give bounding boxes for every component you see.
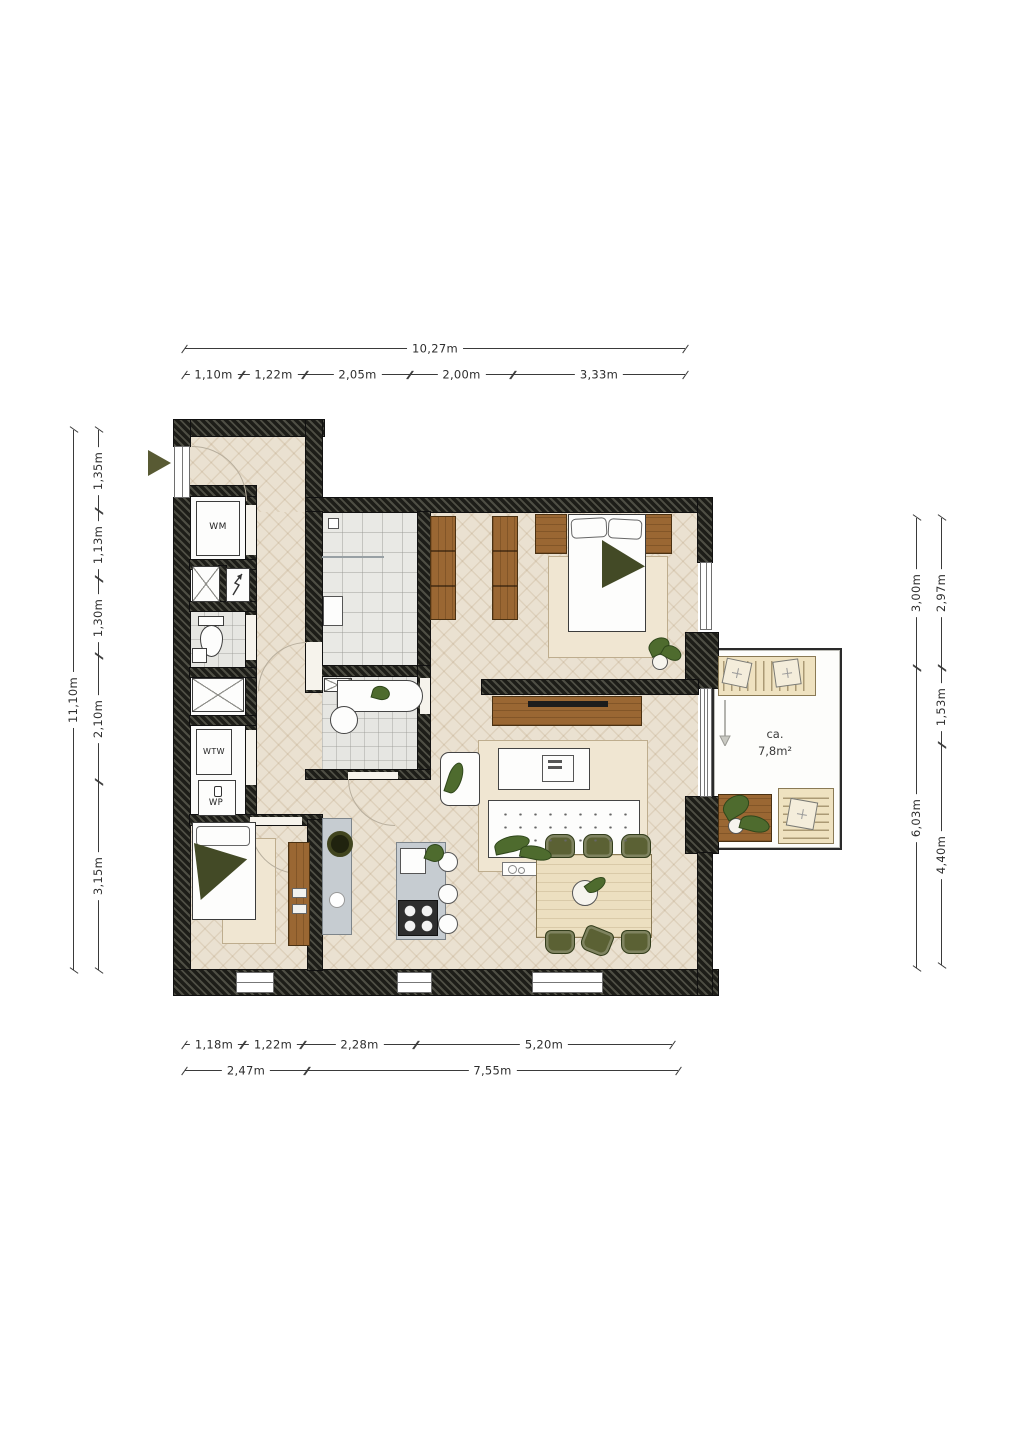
dim-label: 10,27m bbox=[407, 342, 463, 356]
kitchen-window bbox=[397, 972, 432, 993]
wall-living-top bbox=[482, 680, 698, 694]
dim-bottom-seg: 1,18m bbox=[185, 1044, 243, 1045]
dim-top-seg: 3,33m bbox=[513, 374, 685, 375]
dim-label: 2,10m bbox=[91, 695, 105, 743]
storage-closet-2 bbox=[192, 678, 244, 712]
dim-label: 1,22m bbox=[249, 1038, 297, 1052]
dim-top-seg: 2,05m bbox=[305, 374, 410, 375]
washing-machine-label: WM bbox=[196, 522, 240, 532]
dim-label: 2,47m bbox=[222, 1064, 270, 1078]
bathtub-room-door2 bbox=[348, 772, 398, 779]
closet-wardrobe bbox=[430, 516, 456, 620]
dim-label: 1,13m bbox=[91, 521, 105, 569]
dim-right-outer: 3,00m bbox=[916, 518, 917, 668]
master-bed-pillow bbox=[571, 517, 608, 539]
balcony-exit-arrow-icon bbox=[718, 700, 732, 746]
dim-bottom-seg: 2,28m bbox=[303, 1044, 416, 1045]
dim-top-seg: 1,10m bbox=[185, 374, 242, 375]
dim-label: 1,53m bbox=[934, 682, 948, 730]
wall-pier-balcony-bottom bbox=[686, 797, 718, 853]
wall-service-divider bbox=[190, 716, 256, 725]
balcony-sliding-door bbox=[700, 688, 712, 797]
dim-label: 3,33m bbox=[575, 368, 623, 382]
dim-left-seg: 1,30m bbox=[98, 579, 99, 656]
storage-closet bbox=[192, 566, 220, 602]
dim-right-inner: 4,40m bbox=[941, 745, 942, 965]
bench-cushion bbox=[772, 658, 801, 687]
dim-label: 11,10m bbox=[66, 672, 80, 728]
counter-tap bbox=[329, 892, 345, 908]
shower-glass bbox=[322, 556, 384, 558]
coffee-table-book bbox=[548, 766, 562, 769]
dim-left-seg: 3,15m bbox=[98, 782, 99, 970]
bathroom-door bbox=[306, 642, 322, 690]
dim-right-inner: 1,53m bbox=[941, 668, 942, 745]
bedroom2-window bbox=[236, 972, 274, 993]
heat-pump-label: WP bbox=[194, 798, 238, 808]
dim-label: 2,97m bbox=[934, 569, 948, 617]
heat-pump-icon bbox=[214, 786, 222, 797]
wall-bathroom-right bbox=[418, 512, 430, 666]
tech-room-door bbox=[246, 730, 256, 785]
meter-cabinet-arrow-icon bbox=[230, 571, 246, 599]
wall-bathtub-room-top bbox=[306, 666, 430, 676]
wall-meter-divider bbox=[219, 566, 226, 606]
front-door bbox=[174, 446, 190, 498]
dim-bottom-seg: 1,22m bbox=[243, 1044, 303, 1045]
wall-bedroom2-right bbox=[308, 820, 322, 970]
dim-left-seg: 1,35m bbox=[98, 430, 99, 511]
dim-label: 1,18m bbox=[190, 1038, 238, 1052]
dining-chair bbox=[621, 930, 651, 954]
dim-top-seg: 1,22m bbox=[242, 374, 305, 375]
dim-label: 1,30m bbox=[91, 593, 105, 641]
toilet-basin bbox=[192, 648, 207, 663]
island-sink bbox=[400, 848, 426, 874]
round-washbasin bbox=[330, 706, 358, 734]
closet-wardrobe bbox=[492, 516, 518, 620]
wall-left bbox=[174, 498, 190, 995]
dim-top-seg: 2,00m bbox=[410, 374, 513, 375]
dim-bottom-total: 2,47m bbox=[185, 1070, 307, 1071]
dim-label: 2,00m bbox=[437, 368, 485, 382]
master-bedroom-window bbox=[700, 562, 712, 630]
bedroom2-pillow bbox=[196, 826, 250, 846]
dim-label: 1,10m bbox=[189, 368, 237, 382]
bar-stool bbox=[438, 914, 458, 934]
wm-closet-door bbox=[246, 505, 256, 555]
dim-label: 1,35m bbox=[91, 446, 105, 494]
bar-stool bbox=[438, 884, 458, 904]
cooktop bbox=[398, 900, 438, 936]
dining-chair bbox=[545, 930, 575, 954]
bedside-dresser bbox=[535, 514, 567, 554]
living-window bbox=[532, 972, 603, 993]
bathroom-floor bbox=[322, 512, 418, 666]
dim-top-overall: 10,27m bbox=[185, 348, 685, 349]
counter-sink bbox=[327, 831, 353, 857]
balcony-area-prefix: ca. bbox=[740, 726, 810, 743]
floor-plan-canvas: 10,27m 1,10m 1,22m 2,05m 2,00m 3,33m 11,… bbox=[0, 0, 1018, 1440]
dim-label: 7,55m bbox=[468, 1064, 516, 1078]
dim-label: 5,20m bbox=[520, 1038, 568, 1052]
dim-label: 4,40m bbox=[934, 831, 948, 879]
dim-label: 6,03m bbox=[909, 794, 923, 842]
wall-right-lower bbox=[698, 853, 712, 995]
console-glass bbox=[508, 865, 517, 874]
dim-left-seg: 2,10m bbox=[98, 656, 99, 782]
desk-papers bbox=[292, 904, 307, 914]
wall-left-stub bbox=[174, 420, 190, 446]
heat-recovery-label: WTW bbox=[192, 747, 236, 756]
balcony-area-label: ca. 7,8m² bbox=[740, 726, 810, 761]
master-bed-pillow bbox=[607, 518, 642, 540]
bedroom2-door bbox=[250, 817, 302, 825]
wall-top-main bbox=[306, 498, 712, 512]
desk-papers bbox=[292, 888, 307, 898]
shower-drain bbox=[328, 518, 339, 529]
tv bbox=[528, 701, 608, 707]
dim-left-seg: 1,13m bbox=[98, 511, 99, 579]
dim-bottom-seg: 5,20m bbox=[416, 1044, 672, 1045]
dim-label: 2,05m bbox=[333, 368, 381, 382]
wall-hall-top bbox=[174, 420, 324, 436]
wall-service-divider bbox=[190, 602, 256, 611]
dim-label: 1,22m bbox=[249, 368, 297, 382]
console-glass bbox=[518, 867, 525, 874]
dim-label: 3,00m bbox=[909, 569, 923, 617]
bathroom-washbasin bbox=[323, 596, 343, 626]
balcony-area-value: 7,8m² bbox=[740, 743, 810, 760]
coffee-table-book bbox=[548, 760, 562, 763]
entrance-arrow-icon bbox=[148, 450, 171, 476]
dim-left-overall: 11,10m bbox=[73, 430, 74, 970]
bench-cushion bbox=[722, 658, 753, 689]
dim-label: 3,15m bbox=[91, 852, 105, 900]
dim-label: 2,28m bbox=[335, 1038, 383, 1052]
bench-cushion bbox=[786, 798, 818, 830]
wall-right-upper bbox=[698, 498, 712, 562]
dim-bottom-total: 7,55m bbox=[307, 1070, 678, 1071]
dim-right-inner: 2,97m bbox=[941, 518, 942, 668]
toilet-door bbox=[246, 615, 256, 660]
dim-right-outer: 6,03m bbox=[916, 668, 917, 968]
wall-service-divider bbox=[190, 668, 256, 677]
